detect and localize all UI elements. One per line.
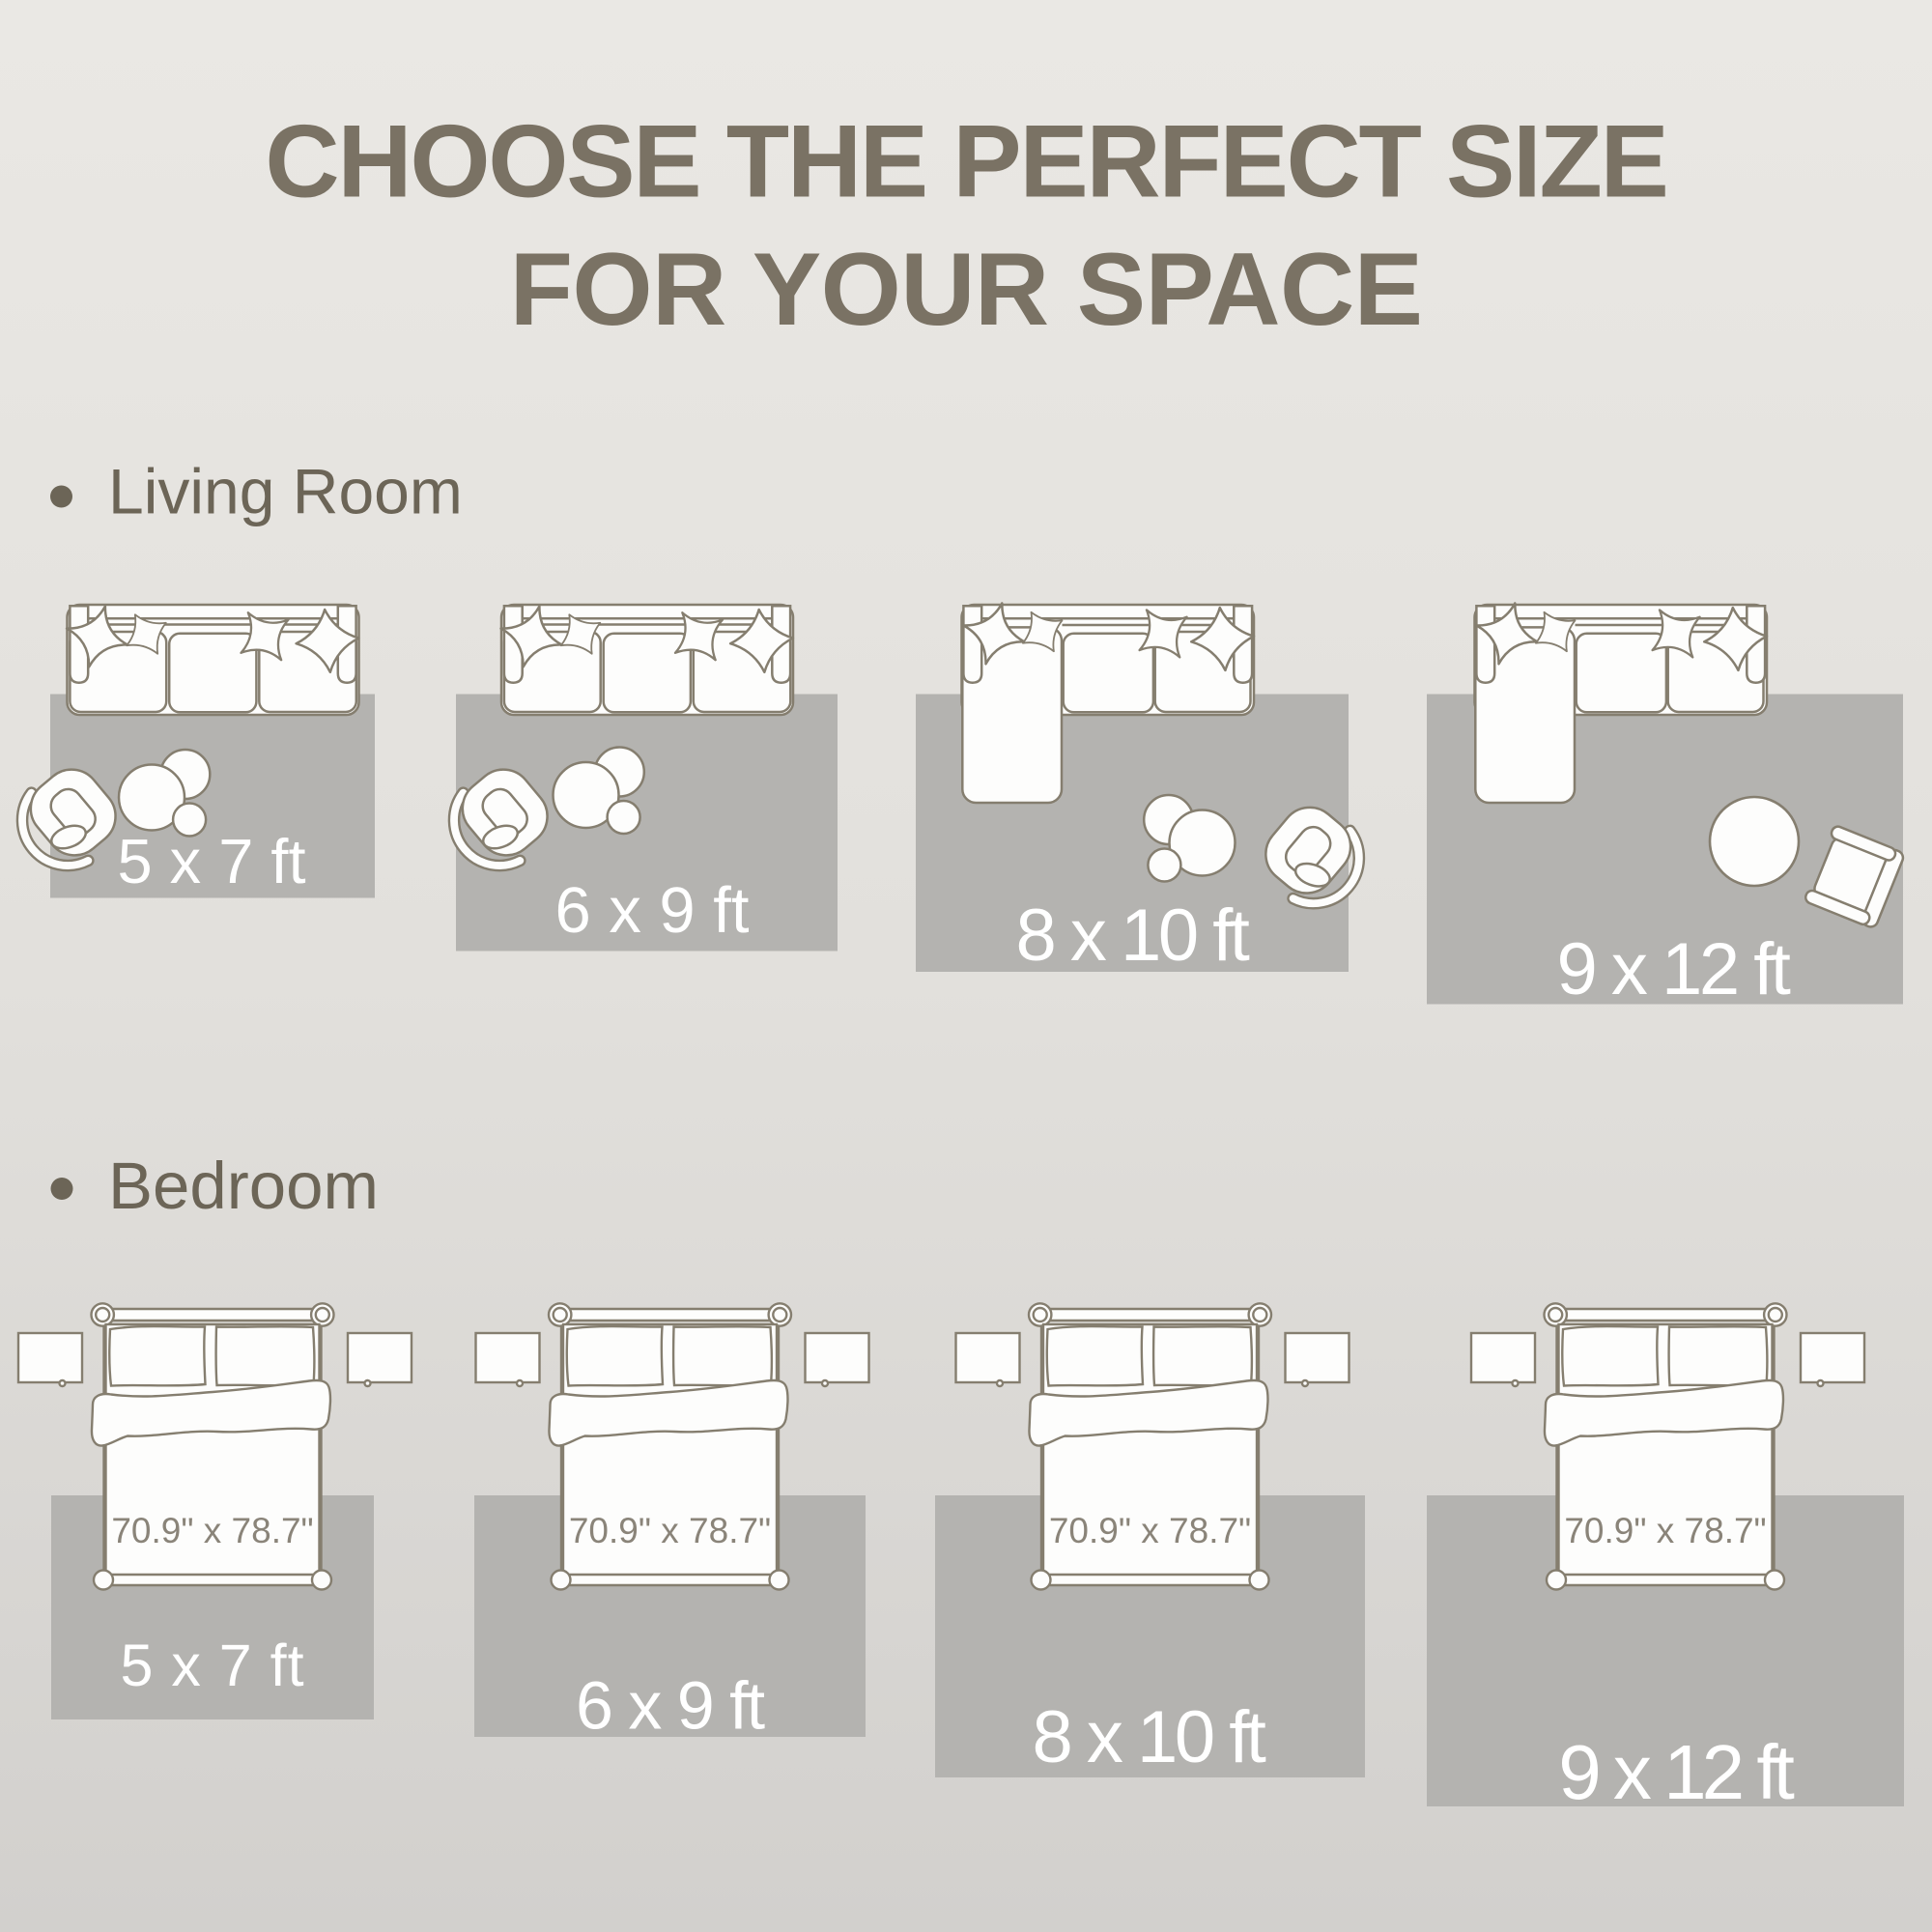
svg-text:6 x 9 ft: 6 x 9 ft [554,874,749,947]
svg-text:5 x 7 ft: 5 x 7 ft [117,826,305,896]
svg-text:8 x 10 ft: 8 x 10 ft [1033,1696,1266,1778]
svg-text:9 x 12 ft: 9 x 12 ft [1557,928,1791,1010]
svg-text:Bedroom: Bedroom [108,1149,379,1223]
svg-text:5 x 7 ft: 5 x 7 ft [120,1633,304,1698]
svg-text:CHOOSE THE PERFECT SIZE: CHOOSE THE PERFECT SIZE [265,103,1666,219]
svg-text:Living Room: Living Room [108,456,463,527]
svg-text:9 x 12 ft: 9 x 12 ft [1558,1729,1794,1815]
svg-text:FOR YOUR SPACE: FOR YOUR SPACE [510,231,1423,347]
svg-text:8 x 10 ft: 8 x 10 ft [1016,895,1250,977]
svg-text:6 x 9 ft: 6 x 9 ft [576,1668,765,1744]
